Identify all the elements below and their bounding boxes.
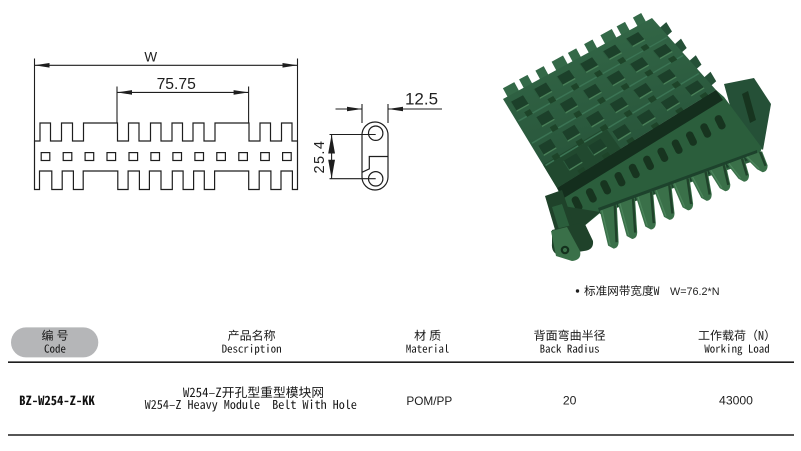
svg-text:W: W	[144, 50, 157, 65]
svg-text:POM/PP: POM/PP	[406, 394, 452, 408]
svg-text:12.5: 12.5	[405, 90, 438, 109]
svg-text:75.75: 75.75	[157, 76, 197, 93]
svg-text:43000: 43000	[719, 394, 753, 408]
svg-text:25.4: 25.4	[312, 140, 328, 174]
svg-text:W=76.2*N: W=76.2*N	[670, 286, 720, 298]
svg-text:20: 20	[563, 394, 577, 408]
